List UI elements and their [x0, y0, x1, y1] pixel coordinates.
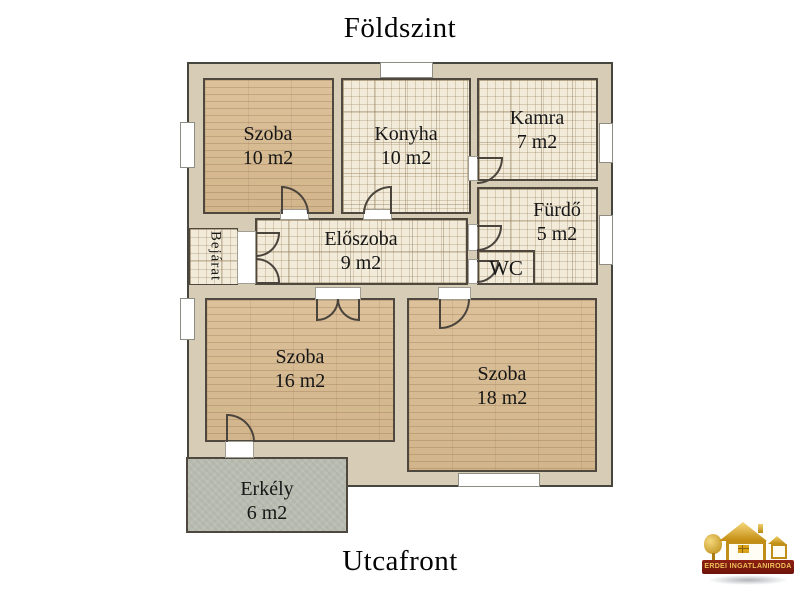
room-name: Előszoba: [324, 227, 397, 251]
page-title: Földszint: [0, 12, 800, 45]
agency-logo: ERDEI INGATLANIRODA: [702, 516, 794, 588]
small-house-roof-icon: [768, 536, 786, 544]
room-name: Fürdő: [533, 198, 581, 222]
room-label-erkely: Erkély 6 m2: [240, 477, 293, 525]
room-area: 9 m2: [324, 251, 397, 275]
room-name: Kamra: [510, 106, 564, 130]
room-label-furdo: Fürdő 5 m2: [533, 198, 581, 246]
door-leaf: [256, 282, 280, 284]
room-area: 7 m2: [510, 130, 564, 154]
tree-icon: [704, 534, 722, 554]
room-label-bejarat: Bejárat: [208, 231, 223, 281]
logo-shadow: [707, 575, 789, 585]
room-name: Szoba: [275, 345, 326, 369]
window: [458, 473, 540, 487]
room-name: Szoba: [477, 362, 528, 386]
room-area: 10 m2: [374, 146, 437, 170]
small-house-body-icon: [771, 544, 787, 559]
room-area: 16 m2: [275, 369, 326, 393]
room-area: 6 m2: [240, 501, 293, 525]
room-name: Bejárat: [208, 231, 223, 281]
window: [180, 122, 195, 168]
room-area: 10 m2: [243, 146, 294, 170]
window: [599, 215, 613, 265]
floorplan-page: Földszint Szoba 1: [0, 0, 800, 600]
window: [380, 62, 433, 78]
room-name: Erkély: [240, 477, 293, 501]
room-label-szoba-16: Szoba 16 m2: [275, 345, 326, 393]
room-name: WC: [489, 256, 523, 280]
door-opening: [225, 441, 254, 458]
agency-name-banner: ERDEI INGATLANIRODA: [702, 560, 794, 574]
room-label-konyha: Konyha 10 m2: [374, 122, 437, 170]
room-area: 5 m2: [533, 222, 581, 246]
room-label-eloszoba: Előszoba 9 m2: [324, 227, 397, 275]
street-front-label: Utcafront: [0, 545, 800, 578]
tree-trunk-icon: [712, 553, 715, 560]
room-name: Szoba: [243, 122, 294, 146]
room-label-wc: WC: [489, 256, 523, 280]
chimney-icon: [758, 524, 763, 533]
window: [599, 123, 613, 163]
room-label-szoba-18: Szoba 18 m2: [477, 362, 528, 410]
window: [180, 298, 195, 340]
room-name: Konyha: [374, 122, 437, 146]
room-label-kamra: Kamra 7 m2: [510, 106, 564, 154]
room-area: 18 m2: [477, 386, 528, 410]
room-label-szoba-10: Szoba 10 m2: [243, 122, 294, 170]
house-window-icon: [738, 545, 749, 553]
door-opening: [237, 231, 256, 284]
